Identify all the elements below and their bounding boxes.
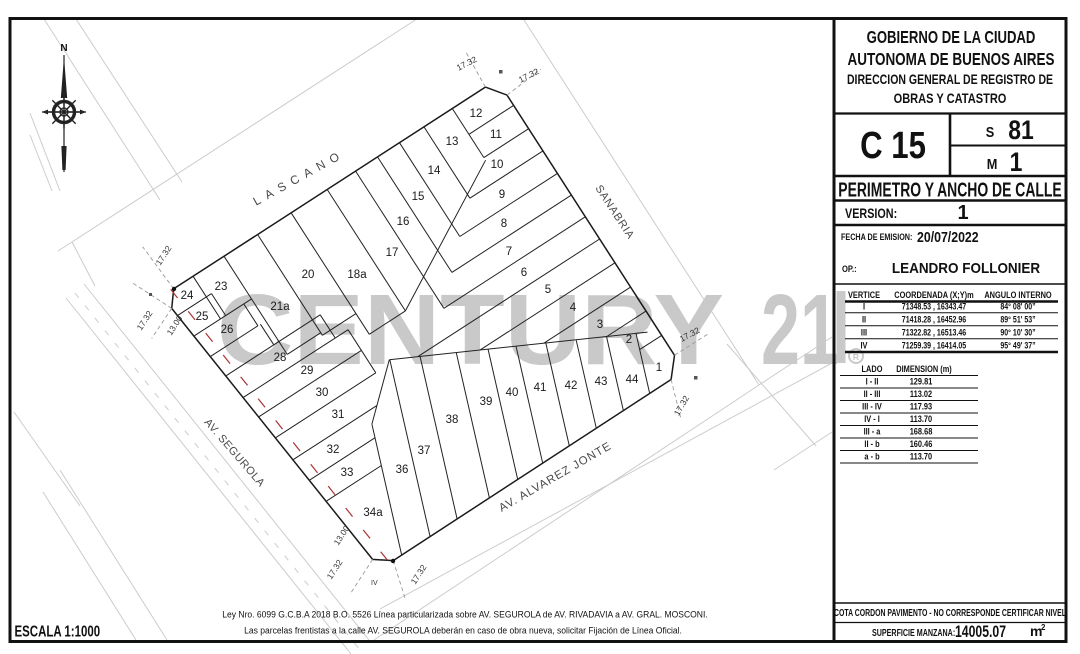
svg-text:4: 4 xyxy=(570,302,577,314)
svg-text:I - II: I - II xyxy=(866,376,879,387)
svg-text:17.32: 17.32 xyxy=(134,308,154,332)
svg-text:II: II xyxy=(862,314,866,325)
svg-text:1: 1 xyxy=(1010,147,1023,177)
svg-text:36: 36 xyxy=(396,464,409,476)
svg-text:16: 16 xyxy=(397,216,410,228)
svg-text:21: 21 xyxy=(761,274,839,386)
svg-text:13.00: 13.00 xyxy=(331,523,351,547)
svg-text:71259.39 , 16414.05: 71259.39 , 16414.05 xyxy=(902,339,967,350)
svg-text:33: 33 xyxy=(341,467,354,479)
svg-text:IV: IV xyxy=(861,340,868,351)
svg-text:24: 24 xyxy=(181,290,194,302)
svg-text:40: 40 xyxy=(506,387,519,399)
svg-text:IV - I: IV - I xyxy=(864,413,880,424)
svg-text:9: 9 xyxy=(499,189,505,201)
svg-text:13.00: 13.00 xyxy=(164,313,184,337)
svg-text:37: 37 xyxy=(418,445,431,457)
svg-text:34a: 34a xyxy=(363,507,383,519)
svg-text:1: 1 xyxy=(957,202,968,224)
svg-text:11: 11 xyxy=(490,129,502,141)
svg-text:113.02: 113.02 xyxy=(910,388,932,399)
svg-text:III: III xyxy=(861,327,867,338)
svg-text:8: 8 xyxy=(501,218,507,230)
svg-text:17.32: 17.32 xyxy=(517,66,541,85)
svg-text:129.81: 129.81 xyxy=(910,376,933,387)
svg-text:117.93: 117.93 xyxy=(910,401,932,412)
svg-text:II - III: II - III xyxy=(864,388,881,399)
svg-text:39: 39 xyxy=(480,396,493,408)
svg-text:R: R xyxy=(853,352,859,362)
svg-text:VERSION:: VERSION: xyxy=(845,206,897,221)
svg-text:DIRECCION GENERAL DE REGISTRO: DIRECCION GENERAL DE REGISTRO DE xyxy=(847,72,1053,88)
svg-text:71418.28 , 16452.96: 71418.28 , 16452.96 xyxy=(902,313,967,324)
svg-text:FECHA DE EMISION:: FECHA DE EMISION: xyxy=(841,231,912,242)
svg-text:10: 10 xyxy=(491,159,504,171)
svg-text:14005.07: 14005.07 xyxy=(955,623,1006,641)
svg-text:SANABRIA: SANABRIA xyxy=(593,183,637,241)
svg-text:90° 10' 30”: 90° 10' 30” xyxy=(1000,326,1035,337)
svg-text:COTA CORDON PAVIMENTO - NO COR: COTA CORDON PAVIMENTO - NO CORRESPONDE C… xyxy=(834,607,1066,619)
svg-text:PERIMETRO Y ANCHO DE CALLE: PERIMETRO Y ANCHO DE CALLE xyxy=(838,178,1061,201)
svg-text:2: 2 xyxy=(626,334,632,346)
svg-text:18a: 18a xyxy=(347,269,367,281)
svg-text:89° 51' 53”: 89° 51' 53” xyxy=(1000,313,1035,324)
svg-text:VERTICE: VERTICE xyxy=(848,289,880,300)
svg-text:44: 44 xyxy=(626,374,639,386)
svg-text:17.32: 17.32 xyxy=(672,394,691,418)
svg-text:M: M xyxy=(987,155,998,172)
svg-text:71322.82 , 16513.46: 71322.82 , 16513.46 xyxy=(902,326,967,337)
svg-text:43: 43 xyxy=(595,376,608,388)
svg-text:23: 23 xyxy=(215,281,228,293)
svg-text:LEANDRO FOLLONIER: LEANDRO FOLLONIER xyxy=(892,260,1040,277)
svg-text:AV. ALVAREZ JONTE: AV. ALVAREZ JONTE xyxy=(497,440,614,514)
svg-text:113.70: 113.70 xyxy=(910,413,932,424)
svg-text:42: 42 xyxy=(565,380,578,392)
svg-text:14: 14 xyxy=(428,165,441,177)
svg-text:29: 29 xyxy=(301,365,314,377)
svg-text:C 15: C 15 xyxy=(860,125,926,167)
svg-text:2: 2 xyxy=(1041,623,1046,632)
svg-text:26: 26 xyxy=(221,324,234,336)
svg-text:160.46: 160.46 xyxy=(910,438,933,449)
svg-text:20: 20 xyxy=(302,269,315,281)
svg-text:3: 3 xyxy=(597,319,603,331)
svg-text:III - a: III - a xyxy=(864,426,881,437)
svg-text:a - b: a - b xyxy=(864,451,879,462)
svg-text:17.32: 17.32 xyxy=(455,54,479,73)
svg-text:ESCALA 1:1000: ESCALA 1:1000 xyxy=(15,623,101,640)
svg-text:28: 28 xyxy=(274,352,287,364)
svg-text:81: 81 xyxy=(1008,115,1034,145)
svg-text:6: 6 xyxy=(521,267,527,279)
svg-text:7: 7 xyxy=(506,246,512,258)
svg-text:17.32: 17.32 xyxy=(408,562,428,586)
svg-text:168.68: 168.68 xyxy=(910,426,933,437)
svg-text:25: 25 xyxy=(196,311,209,323)
svg-text:Las parcelas frentistas a la c: Las parcelas frentistas a la calle AV. S… xyxy=(244,625,682,635)
svg-text:Ley Nro. 6099 G.C.B.A 2018 B.O: Ley Nro. 6099 G.C.B.A 2018 B.O. 5526 Lín… xyxy=(222,609,707,619)
svg-text:AUTONOMA DE BUENOS AIRES: AUTONOMA DE BUENOS AIRES xyxy=(847,50,1054,69)
svg-text:15: 15 xyxy=(412,191,425,203)
svg-text:17: 17 xyxy=(386,247,399,259)
svg-text:113.70: 113.70 xyxy=(910,451,932,462)
svg-text:GOBIERNO DE LA CIUDAD: GOBIERNO DE LA CIUDAD xyxy=(867,28,1036,47)
svg-text:IV: IV xyxy=(371,580,378,587)
svg-text:17.32: 17.32 xyxy=(324,557,344,581)
svg-text:AV. SEGUROLA: AV. SEGUROLA xyxy=(201,417,267,490)
svg-text:20/07/2022: 20/07/2022 xyxy=(917,229,979,245)
svg-text:S: S xyxy=(986,123,995,140)
svg-text:12: 12 xyxy=(470,108,483,120)
svg-text:31: 31 xyxy=(332,409,345,421)
svg-text:OP.:: OP.: xyxy=(842,263,857,274)
svg-text:13: 13 xyxy=(446,136,459,148)
svg-text:30: 30 xyxy=(316,387,329,399)
svg-text:17.32: 17.32 xyxy=(153,243,173,267)
svg-text:N: N xyxy=(60,43,67,54)
svg-text:II - b: II - b xyxy=(864,438,879,449)
svg-text:38: 38 xyxy=(446,414,459,426)
svg-text:32: 32 xyxy=(327,444,340,456)
svg-text:21a: 21a xyxy=(270,301,290,313)
svg-text:41: 41 xyxy=(534,382,547,394)
svg-text:1: 1 xyxy=(656,362,662,374)
svg-text:SUPERFICIE MANZANA:: SUPERFICIE MANZANA: xyxy=(872,627,955,639)
svg-text:95° 49' 37”: 95° 49' 37” xyxy=(1000,339,1035,350)
svg-text:III - IV: III - IV xyxy=(862,401,882,412)
svg-text:ANGULO INTERNO: ANGULO INTERNO xyxy=(984,289,1052,300)
svg-text:COORDENADA (X;Y)m: COORDENADA (X;Y)m xyxy=(894,289,974,300)
svg-text:LADO: LADO xyxy=(862,363,883,374)
svg-text:OBRAS Y CATASTRO: OBRAS Y CATASTRO xyxy=(894,91,1007,106)
svg-text:DIMENSION (m): DIMENSION (m) xyxy=(896,363,952,374)
svg-text:5: 5 xyxy=(545,284,551,296)
